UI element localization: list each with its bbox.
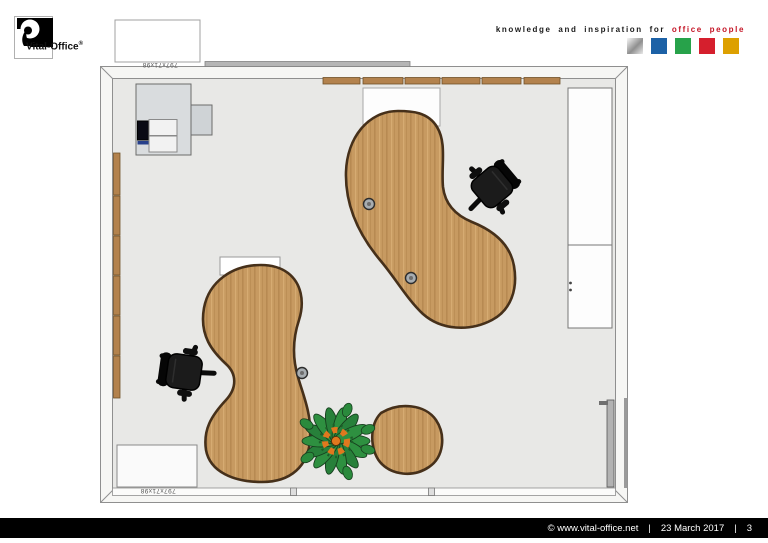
dimension-label-bottom: 797x71x98 — [127, 487, 189, 494]
dimension-label-top: 797x71x98 — [129, 61, 191, 68]
brand-name: Vital-Office® — [26, 41, 83, 52]
footer-copyright: © www.vital-office.net — [548, 523, 639, 534]
tall-cabinet-right — [568, 88, 612, 328]
footer-bar: © www.vital-office.net | 23 March 2017 |… — [0, 518, 768, 538]
registered-mark: ® — [79, 41, 83, 47]
side-table — [372, 406, 442, 474]
window-sill-bar — [205, 62, 410, 67]
footer-page-number: 3 — [747, 523, 752, 534]
sideboard-bottom-left — [117, 445, 197, 487]
floorplan-canvas — [0, 0, 768, 543]
footer-separator: | — [734, 523, 736, 534]
exterior-sideboard-top — [115, 20, 200, 62]
footer-separator: | — [648, 523, 650, 534]
footer-date: 23 March 2017 — [661, 523, 724, 534]
